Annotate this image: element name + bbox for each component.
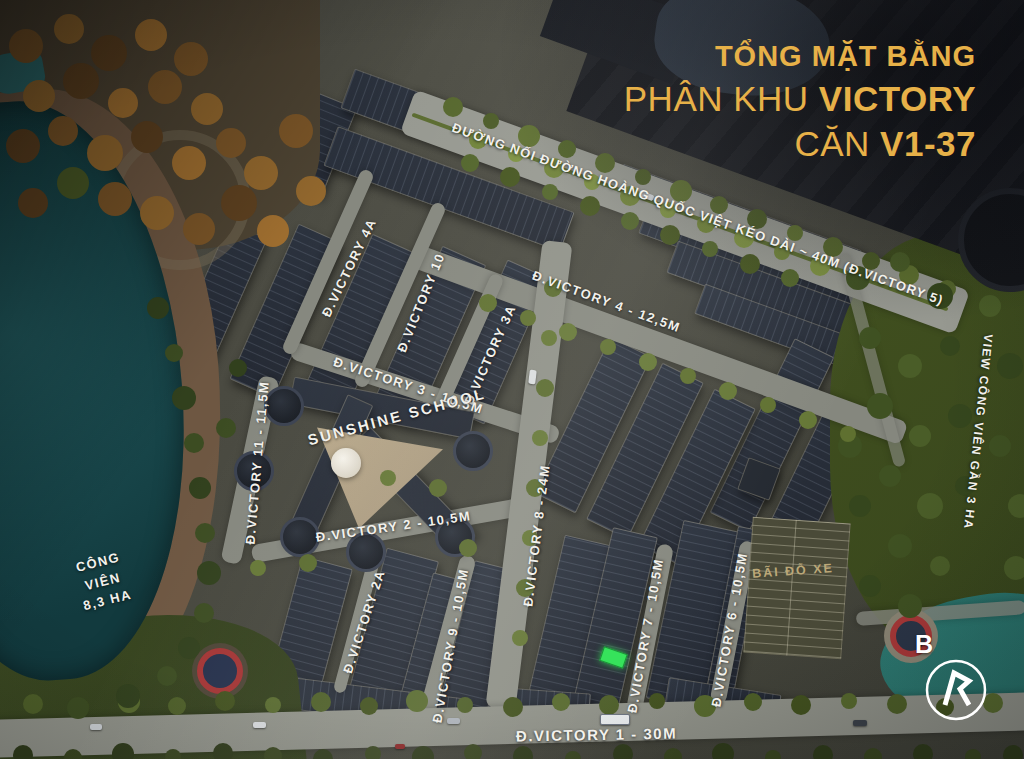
title-line-3-bold: V1-37 <box>880 124 976 163</box>
masterplan-map: ĐƯỜNG NỐI ĐƯỜNG HOÀNG QUỐC VIỆT KÉO DÀI … <box>0 0 1024 759</box>
playground-circle <box>197 648 243 694</box>
title-line-1: TỔNG MẶT BẰNG <box>624 38 976 76</box>
title-line-2: PHÂN KHU VICTORY <box>624 76 976 122</box>
car <box>447 718 460 724</box>
car <box>853 720 867 726</box>
title-line-3-prefix: CĂN <box>794 124 880 163</box>
road-label-victory-1: Đ.VICTORY 1 - 30M <box>516 725 677 745</box>
plan-title: TỔNG MẶT BẰNG PHÂN KHU VICTORY CĂN V1-37 <box>624 38 976 167</box>
bus <box>600 714 630 725</box>
compass-north-label: B <box>915 630 933 659</box>
brand-logo-icon <box>924 658 988 722</box>
tree-cluster <box>0 0 16 16</box>
title-line-3: CĂN V1-37 <box>624 121 976 167</box>
car <box>253 722 266 728</box>
title-line-2-bold: VICTORY <box>819 79 976 118</box>
title-line-2-prefix: PHÂN KHU <box>624 79 819 118</box>
car <box>90 724 102 730</box>
car <box>395 744 405 749</box>
school-dome <box>331 448 361 478</box>
school-tower <box>453 431 493 471</box>
parking-lot <box>743 517 850 660</box>
school-tower <box>280 517 320 557</box>
